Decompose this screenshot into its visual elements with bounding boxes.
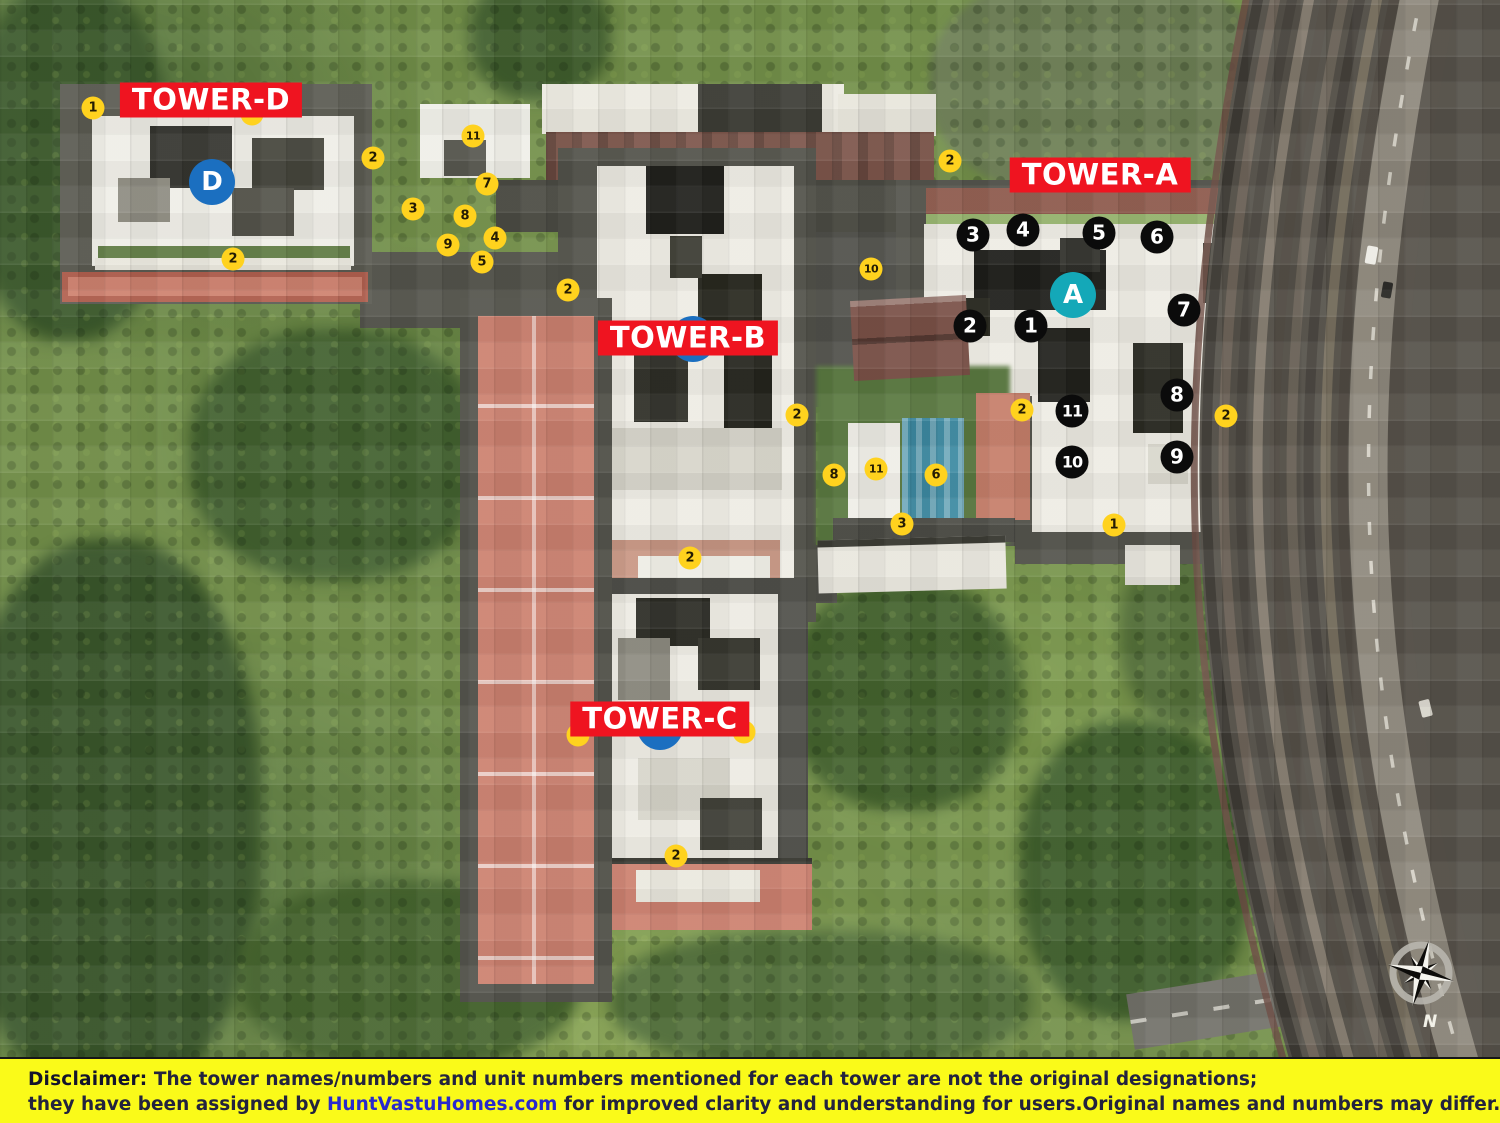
yellow-unit-marker-2: 2: [362, 147, 385, 170]
yellow-unit-marker-1: 1: [82, 97, 105, 120]
compass-north-label: N: [1423, 1012, 1437, 1031]
yellow-unit-marker-6: 6: [925, 464, 948, 487]
yellow-unit-marker-9: 9: [437, 234, 460, 257]
yellow-unit-marker-11: 11: [865, 458, 888, 481]
yellow-unit-marker-2: 2: [679, 547, 702, 570]
tower-label-B: TOWER-B: [598, 321, 778, 356]
yellow-unit-marker-2: 2: [939, 150, 962, 173]
huntvastuhomes-link: HuntVastuHomes.com: [327, 1094, 558, 1115]
yellow-unit-marker-2: 2: [222, 248, 245, 271]
yellow-unit-marker-8: 8: [823, 464, 846, 487]
yellow-unit-marker-7: 7: [476, 173, 499, 196]
black-unit-marker-10: 10: [1056, 446, 1089, 479]
tower-letter-D: D: [189, 159, 235, 205]
tower-letter-A: A: [1050, 272, 1096, 318]
yellow-unit-marker-2: 2: [1215, 405, 1238, 428]
black-unit-marker-3: 3: [957, 219, 990, 252]
yellow-unit-marker-10: 10: [860, 258, 883, 281]
black-unit-marker-8: 8: [1161, 379, 1194, 412]
yellow-unit-marker-2: 2: [786, 404, 809, 427]
annotation-layer: 121173894522102281163222123456217811109D…: [0, 0, 1500, 1123]
disclaimer-bar: Disclaimer: The tower names/numbers and …: [0, 1057, 1500, 1123]
yellow-unit-marker-3: 3: [891, 513, 914, 536]
site-plan-image: 121173894522102281163222123456217811109D…: [0, 0, 1500, 1123]
yellow-unit-marker-1: 1: [1103, 514, 1126, 537]
yellow-unit-marker-11: 11: [462, 125, 485, 148]
disclaimer-line-2: they have been assigned by HuntVastuHome…: [28, 1092, 1500, 1117]
disclaimer-line-1: Disclaimer: The tower names/numbers and …: [28, 1067, 1500, 1092]
black-unit-marker-1: 1: [1015, 310, 1048, 343]
black-unit-marker-11: 11: [1056, 395, 1089, 428]
yellow-unit-marker-2: 2: [665, 845, 688, 868]
yellow-unit-marker-4: 4: [484, 227, 507, 250]
black-unit-marker-2: 2: [954, 310, 987, 343]
black-unit-marker-5: 5: [1083, 217, 1116, 250]
disclaimer-label: Disclaimer:: [28, 1069, 147, 1090]
black-unit-marker-9: 9: [1161, 441, 1194, 474]
black-unit-marker-7: 7: [1168, 294, 1201, 327]
tower-label-D: TOWER-D: [120, 83, 302, 118]
yellow-unit-marker-2: 2: [1011, 399, 1034, 422]
compass-icon: N: [1381, 939, 1461, 1031]
yellow-unit-marker-8: 8: [454, 205, 477, 228]
yellow-unit-marker-2: 2: [557, 279, 580, 302]
yellow-unit-marker-5: 5: [471, 251, 494, 274]
black-unit-marker-6: 6: [1141, 221, 1174, 254]
tower-label-C: TOWER-C: [570, 702, 749, 737]
tower-label-A: TOWER-A: [1010, 158, 1191, 193]
yellow-unit-marker-3: 3: [402, 198, 425, 221]
black-unit-marker-4: 4: [1007, 214, 1040, 247]
